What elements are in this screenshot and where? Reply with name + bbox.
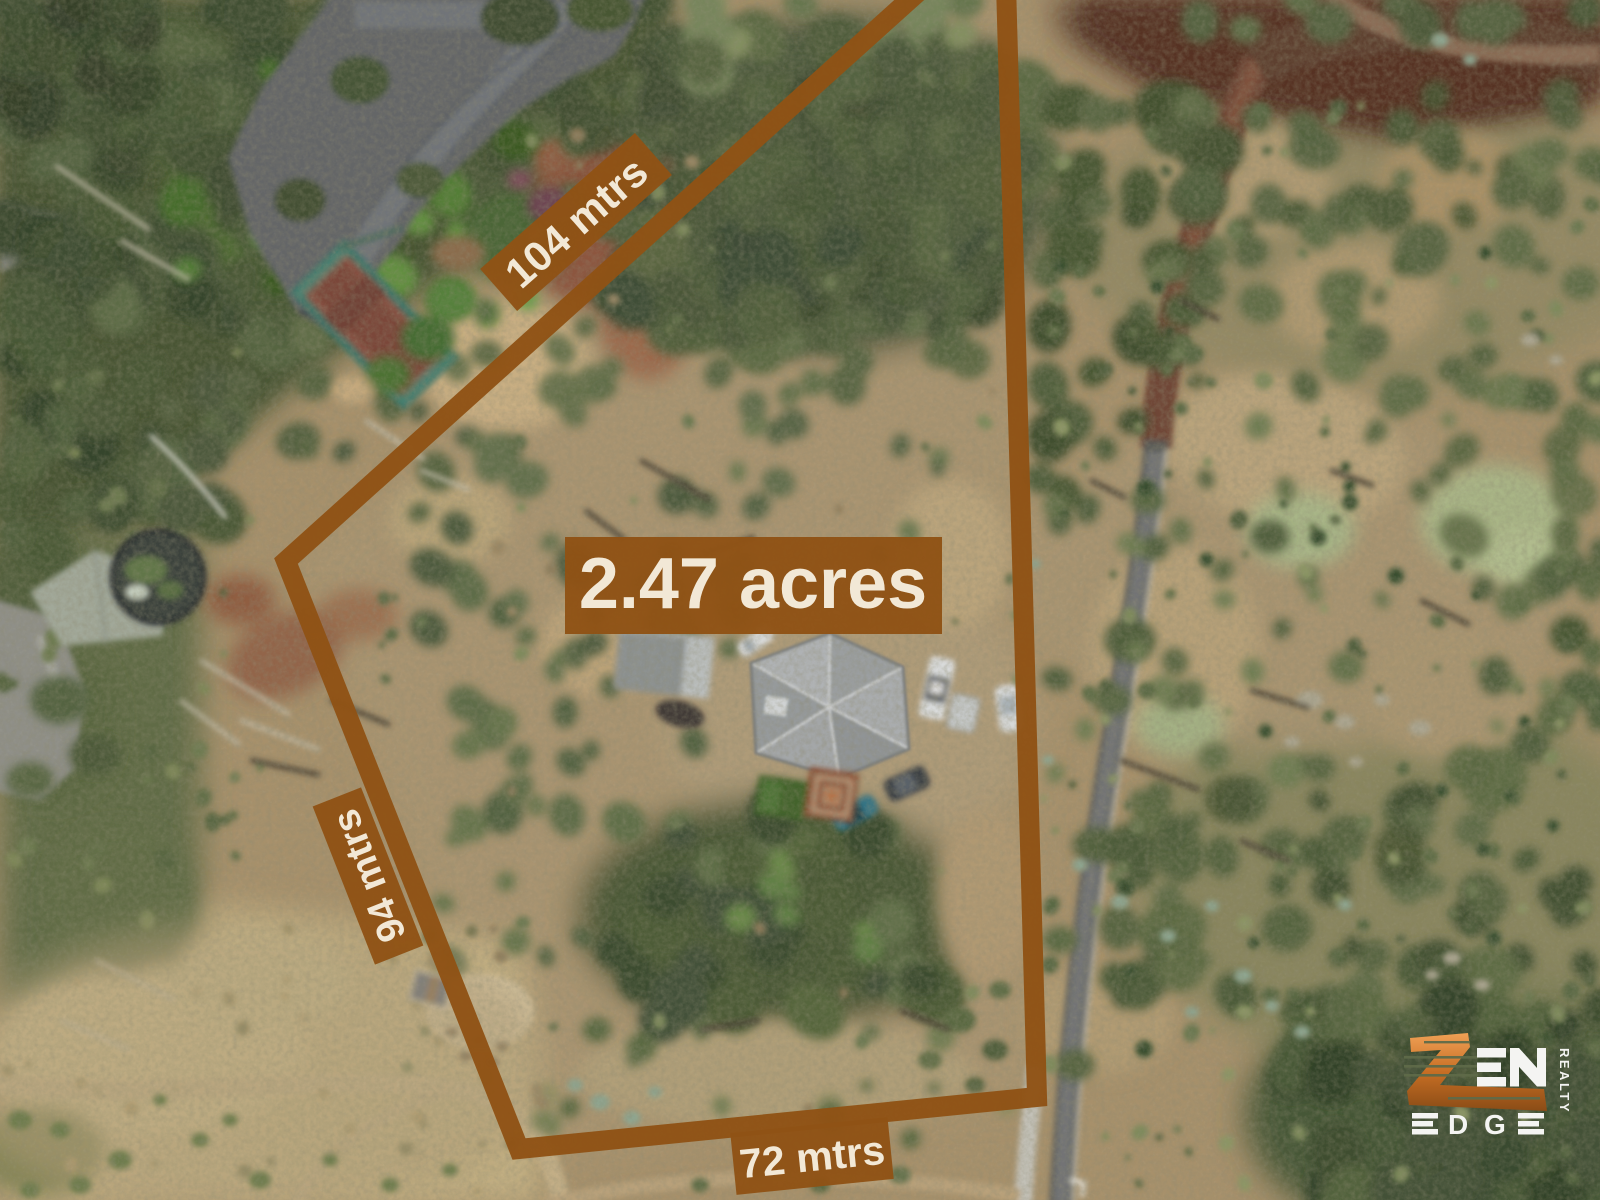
svg-text:REALTY: REALTY xyxy=(1557,1048,1572,1114)
svg-text:G: G xyxy=(1484,1109,1506,1140)
svg-text:D: D xyxy=(1448,1109,1468,1140)
svg-text:2.47 acres: 2.47 acres xyxy=(579,544,927,624)
